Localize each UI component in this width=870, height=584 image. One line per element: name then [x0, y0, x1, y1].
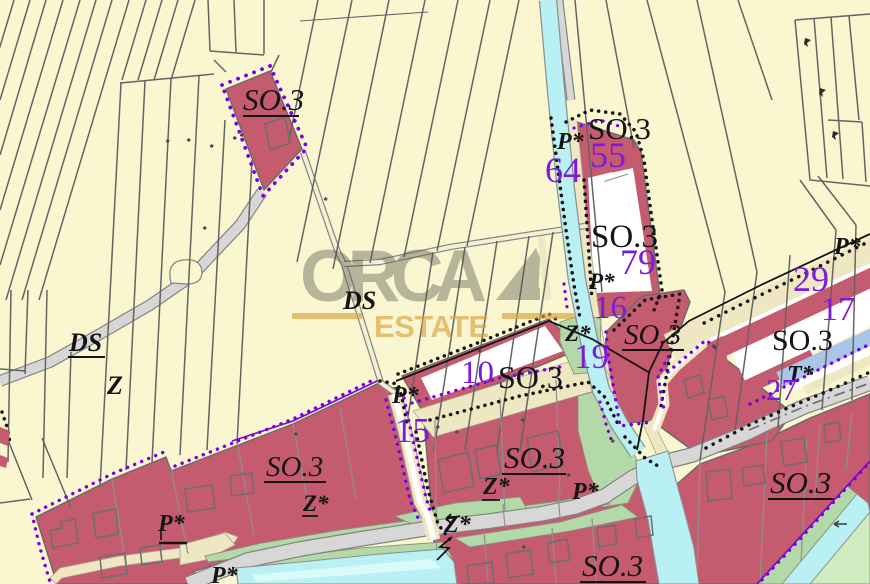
- svg-text:DS: DS: [342, 286, 376, 315]
- svg-text:64: 64: [545, 150, 581, 190]
- svg-text:SO.3: SO.3: [624, 319, 681, 351]
- svg-text:SO.3: SO.3: [243, 82, 304, 117]
- svg-text:10: 10: [461, 355, 494, 391]
- svg-text:SO.3: SO.3: [266, 451, 323, 483]
- svg-text:SO.3: SO.3: [772, 324, 833, 357]
- svg-text:SO.3: SO.3: [582, 548, 643, 583]
- svg-text:29: 29: [793, 259, 829, 299]
- svg-text:P*: P*: [210, 563, 239, 584]
- svg-text:27: 27: [766, 372, 797, 407]
- svg-text:Z*: Z*: [302, 491, 329, 516]
- svg-text:P*: P*: [833, 234, 862, 260]
- svg-text:16: 16: [594, 290, 627, 326]
- svg-text:ESTATE: ESTATE: [374, 309, 492, 344]
- svg-text:DS: DS: [68, 328, 102, 357]
- svg-text:P*: P*: [571, 479, 600, 505]
- svg-text:Z*: Z*: [482, 474, 511, 500]
- svg-text:79: 79: [620, 242, 656, 282]
- svg-text:19: 19: [574, 337, 609, 376]
- svg-text:SO.3: SO.3: [504, 440, 565, 475]
- svg-text:55: 55: [590, 135, 626, 175]
- svg-text:SO.3: SO.3: [498, 359, 563, 395]
- svg-text:Z: Z: [106, 371, 123, 400]
- svg-text:ORCA: ORCA: [300, 236, 486, 317]
- svg-text:P*: P*: [391, 383, 420, 409]
- svg-text:15: 15: [395, 411, 430, 450]
- svg-text:SO.3: SO.3: [770, 465, 831, 500]
